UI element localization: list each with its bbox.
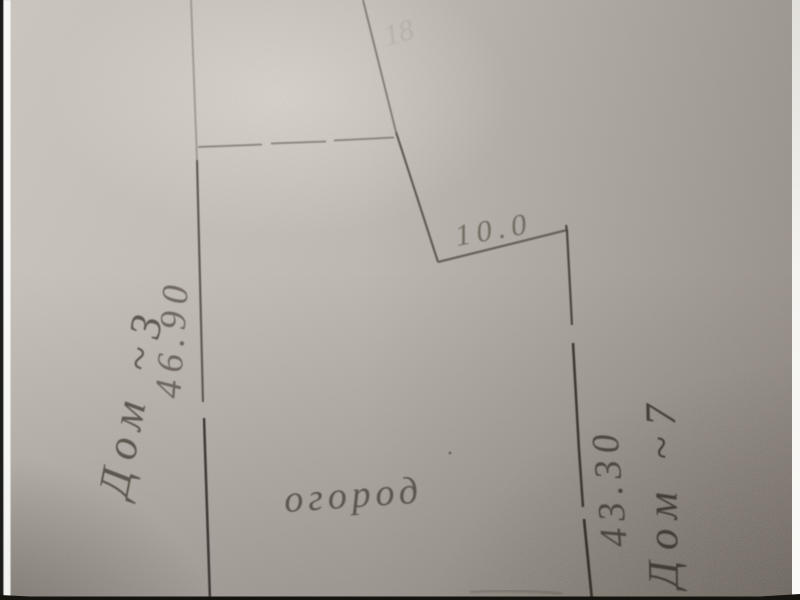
svg-text:46.90: 46.90 <box>148 284 197 400</box>
